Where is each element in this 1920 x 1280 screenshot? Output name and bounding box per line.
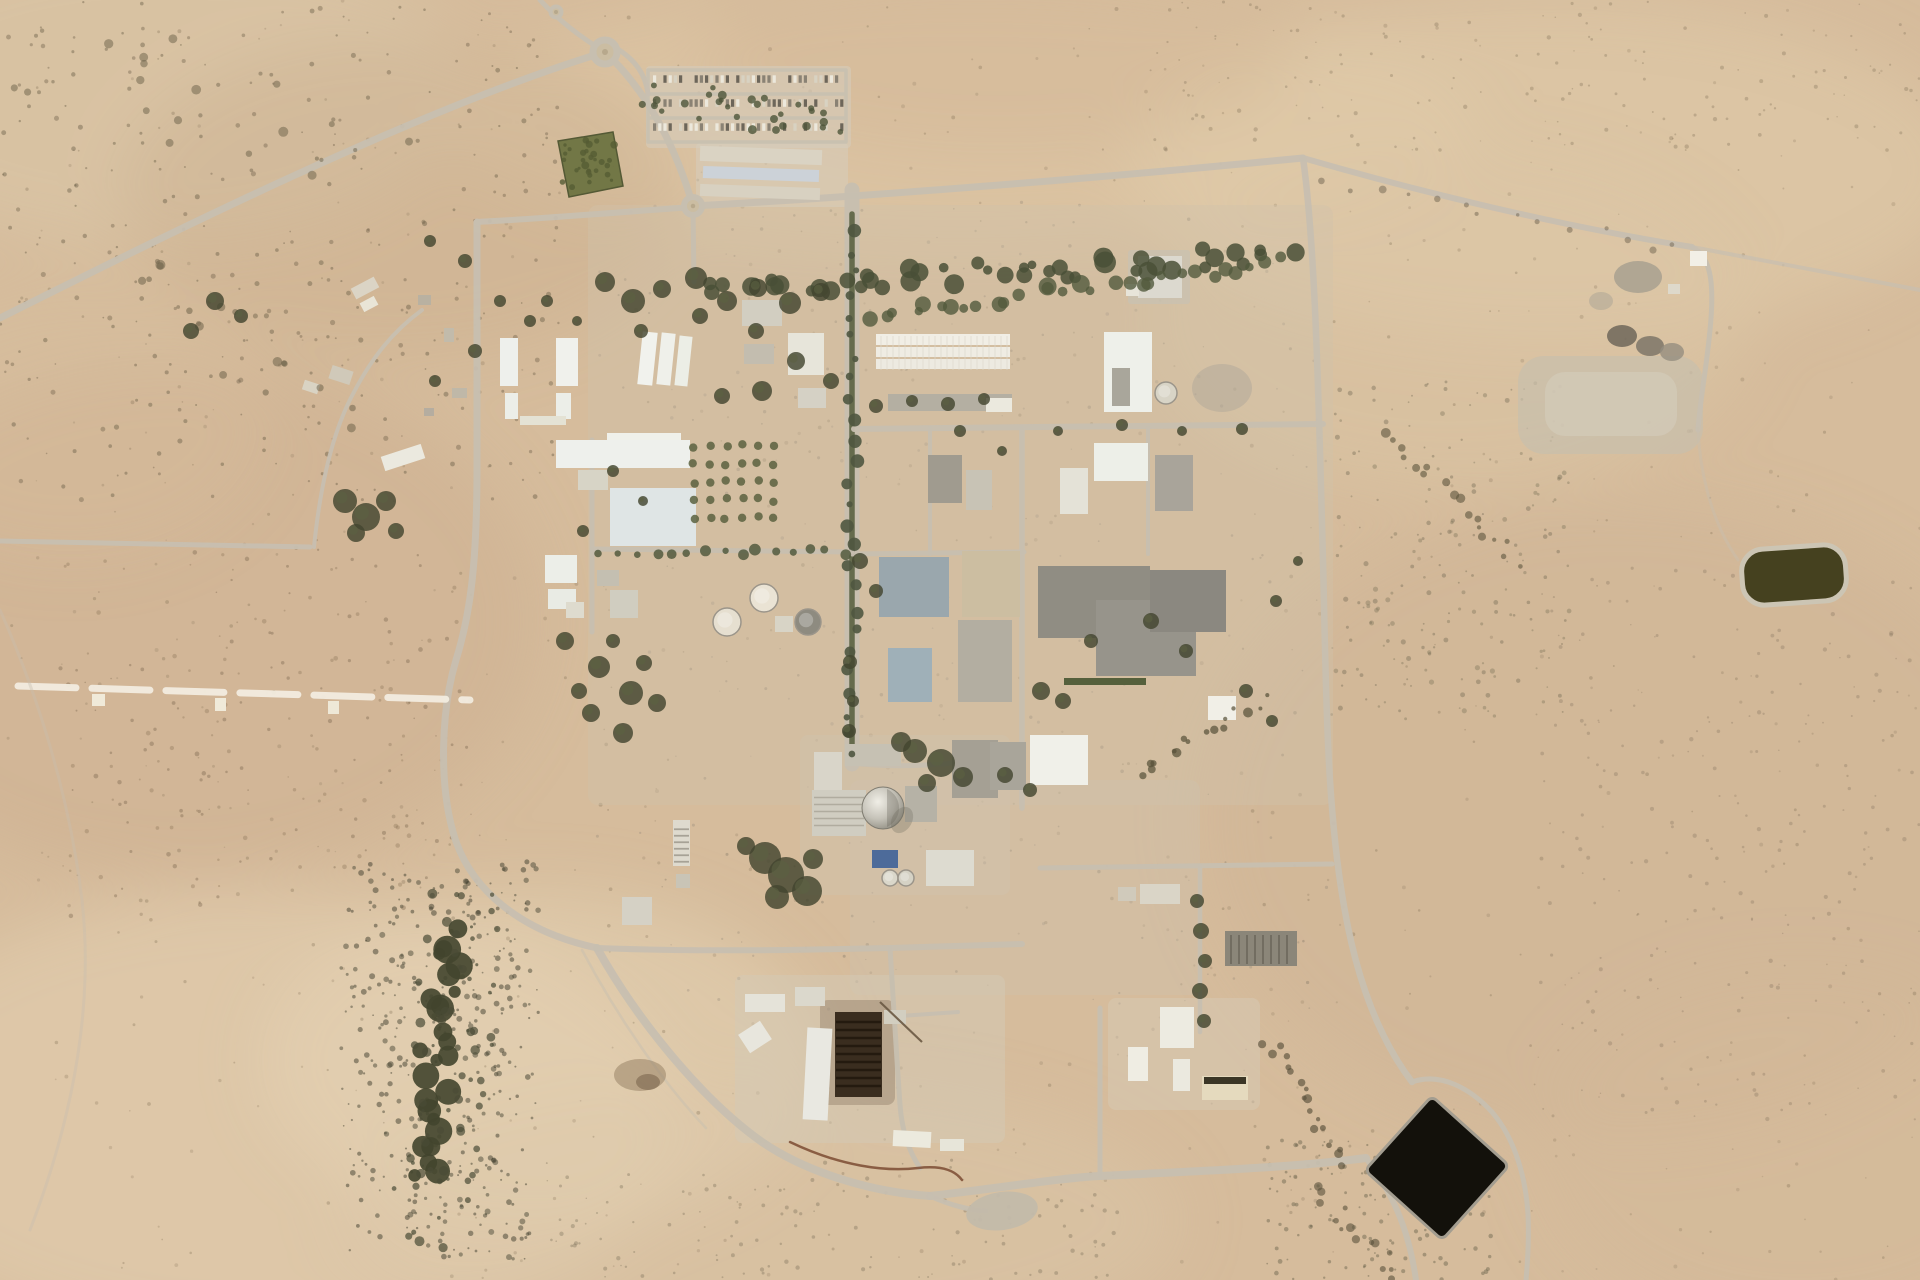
- scrub-speck: [1626, 600, 1629, 603]
- tree: [1141, 277, 1154, 290]
- building: [742, 300, 782, 326]
- scrub-speck: [1457, 248, 1460, 251]
- scrub-speck: [1572, 88, 1574, 90]
- scrub-speck: [44, 79, 48, 83]
- scrub-speck: [1534, 99, 1537, 102]
- building: [795, 987, 825, 1006]
- scrub-speck: [507, 996, 513, 1002]
- scrub-speck: [1829, 643, 1831, 645]
- scrub-speck: [28, 378, 31, 381]
- tree: [406, 1154, 414, 1162]
- scrub-speck: [1035, 57, 1038, 60]
- scrub-speck: [1562, 637, 1565, 640]
- scrub-speck: [133, 1023, 136, 1026]
- scrub-speck: [474, 1019, 477, 1022]
- scrub-speck: [72, 789, 74, 791]
- scrub-speck: [422, 221, 427, 226]
- scrub-speck: [117, 780, 121, 784]
- scrub-speck: [157, 30, 160, 33]
- scrub-speck: [302, 798, 304, 800]
- scrub-speck: [1691, 811, 1693, 813]
- scrub-speck: [1489, 310, 1491, 312]
- scrub-speck: [1544, 528, 1547, 531]
- scrub-speck: [692, 824, 695, 827]
- scrub-speck: [1593, 902, 1596, 905]
- building: [798, 388, 826, 408]
- scrub-speck: [211, 734, 213, 736]
- tree-cluster-lite: [638, 657, 646, 665]
- scrub-speck: [1697, 1083, 1699, 1085]
- scrub-speck: [1650, 954, 1653, 957]
- scrub-speck: [1201, 115, 1205, 119]
- scrub-speck: [1403, 1256, 1407, 1260]
- scrub-speck: [1598, 721, 1600, 723]
- scrub-speck: [1590, 38, 1593, 41]
- scrub-speck: [1263, 1158, 1267, 1162]
- scrub-speck: [1376, 607, 1380, 611]
- scrub-speck: [456, 1009, 459, 1012]
- scrub-speck: [780, 1212, 783, 1215]
- scrub-speck: [1515, 54, 1518, 57]
- scrub-speck: [1769, 470, 1773, 474]
- orchard-tree: [689, 443, 697, 451]
- scrub-speck: [1407, 259, 1409, 261]
- scrub-speck: [491, 1158, 496, 1163]
- scrub-speck: [1063, 1225, 1066, 1228]
- scrub-speck: [1191, 117, 1194, 120]
- scrub-speck: [1188, 1147, 1191, 1150]
- scrub-speck: [1382, 1194, 1386, 1198]
- tree-cluster-lite: [1237, 424, 1243, 430]
- scrub-speck: [1656, 947, 1658, 949]
- scrub-speck: [350, 558, 353, 561]
- scrub-speck: [41, 272, 46, 277]
- scrub-speck: [1263, 903, 1266, 906]
- scrub-speck: [55, 1079, 57, 1081]
- scrub-speck: [1764, 362, 1766, 364]
- orchard-tree: [706, 460, 714, 468]
- scrub-speck: [1741, 997, 1743, 999]
- parked-car: [778, 99, 781, 107]
- scrub-speck: [1425, 500, 1428, 503]
- scrub-speck: [298, 671, 302, 675]
- scrub-speck: [411, 910, 415, 914]
- scrub-speck: [1660, 740, 1664, 744]
- scrub-speck: [1301, 1197, 1305, 1201]
- scrub-speck: [198, 810, 201, 813]
- scrub-speck: [406, 659, 410, 663]
- tree: [1407, 192, 1411, 196]
- scrub-speck: [1650, 1108, 1654, 1112]
- scrub-speck: [483, 1213, 487, 1217]
- tree: [1442, 478, 1450, 486]
- tree-cluster-lite: [1057, 695, 1065, 703]
- scrub-speck: [1453, 403, 1456, 406]
- scrub-speck: [506, 26, 508, 28]
- scrub-speck: [524, 1258, 526, 1260]
- scrub-speck: [1665, 951, 1667, 953]
- scrub-speck: [155, 563, 158, 566]
- scrub-speck: [145, 343, 147, 345]
- scrub-speck: [920, 1249, 924, 1253]
- scrub-speck: [1679, 1228, 1682, 1231]
- scrub-speck: [1483, 393, 1487, 397]
- scrub-speck: [360, 1018, 363, 1021]
- scrub-speck: [1823, 805, 1826, 808]
- scrub-speck: [1799, 683, 1801, 685]
- scrub-speck: [221, 553, 224, 556]
- tree: [1338, 1162, 1345, 1169]
- scrub-speck: [346, 973, 349, 976]
- scrub-speck: [1826, 964, 1828, 966]
- parked-car: [736, 75, 739, 83]
- scrub-speck: [18, 350, 21, 353]
- scrub-speck: [408, 1198, 412, 1202]
- scrub-speck: [284, 310, 288, 314]
- scrub-speck: [525, 1074, 531, 1080]
- scrub-speck: [1430, 556, 1432, 558]
- scrub-speck: [1271, 1012, 1275, 1016]
- tree: [411, 1230, 416, 1235]
- scrub-speck: [145, 432, 147, 434]
- orchard-tree: [723, 494, 731, 502]
- scrub-speck: [1418, 909, 1421, 912]
- scrub-speck: [1013, 1128, 1015, 1130]
- scrub-speck: [522, 479, 524, 481]
- scrub-speck: [1805, 723, 1807, 725]
- scrub-speck: [95, 709, 97, 711]
- scrub-speck: [418, 647, 423, 652]
- scrub-speck: [1595, 990, 1598, 993]
- scrub-speck: [374, 489, 376, 491]
- scrub-speck: [71, 146, 76, 151]
- ground-pad: [1545, 372, 1677, 436]
- tree: [405, 138, 413, 146]
- tree: [1231, 706, 1235, 710]
- scrub-speck: [264, 313, 269, 318]
- building: [966, 470, 992, 510]
- scrub-speck: [585, 1223, 587, 1225]
- scrub-speck: [1753, 1088, 1757, 1092]
- scrub-speck: [1787, 1184, 1791, 1188]
- scrub-speck: [1564, 984, 1566, 986]
- scrub-speck: [1587, 732, 1590, 735]
- scrub-speck: [1458, 543, 1462, 547]
- scrub-speck: [477, 1128, 479, 1130]
- scrub-speck: [1384, 420, 1389, 425]
- scrub-speck: [570, 970, 572, 972]
- scrub-speck: [1640, 131, 1642, 133]
- parked-car: [689, 99, 692, 107]
- scrub-speck: [1341, 684, 1343, 686]
- scrub-speck: [359, 59, 362, 62]
- scrub-speck: [1706, 1056, 1709, 1059]
- scrub-speck: [1798, 740, 1800, 742]
- scrub-speck: [1417, 534, 1419, 536]
- scrub-speck: [1048, 1083, 1051, 1086]
- scrub-speck: [500, 1170, 503, 1173]
- tree: [846, 291, 855, 300]
- scrub-speck: [1342, 670, 1347, 675]
- scrub-speck: [836, 1183, 839, 1186]
- parked-car: [757, 75, 760, 83]
- scrub-speck: [1531, 1210, 1533, 1212]
- scrub-speck: [1476, 679, 1481, 684]
- scrub-speck: [314, 338, 317, 341]
- scrub-speck: [412, 976, 416, 980]
- building: [926, 850, 974, 886]
- scrub-speck: [642, 856, 645, 859]
- scrub-speck: [1763, 109, 1765, 111]
- scrub-speck: [1736, 628, 1738, 630]
- scrub-speck: [1421, 55, 1424, 58]
- tree: [470, 925, 473, 928]
- scrub-speck: [219, 635, 221, 637]
- scrub-speck: [413, 1124, 418, 1129]
- scrub-speck: [499, 950, 501, 952]
- scrub-speck: [1685, 149, 1687, 151]
- tree-cluster-lite: [1054, 427, 1059, 432]
- tree: [427, 1113, 440, 1126]
- tree-cluster-lite: [955, 426, 961, 432]
- parked-car: [721, 123, 724, 131]
- scrub-speck: [559, 1232, 563, 1236]
- scrub-speck: [506, 1173, 510, 1177]
- scrub-speck: [1421, 629, 1424, 632]
- parked-car: [830, 75, 833, 83]
- scrub-speck: [177, 29, 181, 33]
- scrub-speck: [501, 390, 504, 393]
- scrub-speck: [431, 910, 437, 916]
- scrub-speck: [1844, 76, 1847, 79]
- tree: [970, 301, 981, 312]
- scrub-speck: [67, 904, 71, 908]
- scrub-speck: [1720, 916, 1723, 919]
- scrub-speck: [514, 1066, 516, 1068]
- tree: [1333, 1218, 1339, 1224]
- scrub-speck: [1195, 113, 1199, 117]
- scrub-speck: [1863, 863, 1866, 866]
- scrub-speck: [405, 1147, 407, 1149]
- scrub-speck: [732, 1093, 734, 1095]
- scrub-speck: [443, 1219, 448, 1224]
- scrub-speck: [121, 32, 124, 35]
- scrub-speck: [373, 949, 379, 955]
- scrub-speck: [1550, 168, 1552, 170]
- scrub-speck: [1609, 2, 1612, 5]
- scrub-speck: [1865, 1177, 1867, 1179]
- scrub-speck: [1653, 585, 1655, 587]
- scrub-speck: [1297, 1234, 1300, 1237]
- tree: [998, 297, 1009, 308]
- scrub-speck: [78, 150, 80, 152]
- parked-car: [788, 99, 791, 107]
- scrub-speck: [861, 1267, 865, 1271]
- scrub-speck: [1438, 711, 1441, 714]
- scrub-speck: [1536, 667, 1538, 669]
- tree-cluster-lite: [597, 274, 607, 284]
- parked-car: [747, 75, 750, 83]
- scrub-speck: [200, 778, 203, 781]
- tree-cluster-lite: [719, 293, 729, 303]
- scrub-speck: [370, 241, 372, 243]
- scrub-speck: [1282, 1179, 1286, 1183]
- scrub-speck: [211, 495, 214, 498]
- field-mottle: [586, 140, 590, 144]
- tree: [840, 273, 856, 289]
- scrub-speck: [327, 1201, 331, 1205]
- scrub-speck: [1757, 652, 1760, 655]
- tree: [852, 624, 861, 633]
- scrub-speck: [36, 86, 39, 89]
- parked-car: [700, 99, 703, 107]
- scrub-speck: [467, 108, 472, 113]
- scrub-speck: [1443, 638, 1448, 643]
- scrub-speck: [1224, 861, 1226, 863]
- scrub-speck: [1882, 739, 1885, 742]
- tree-cluster-lite: [390, 525, 398, 533]
- tree: [840, 519, 853, 532]
- field-mottle: [563, 143, 566, 146]
- scrub-speck: [1705, 882, 1709, 886]
- tree: [480, 1091, 486, 1097]
- tree: [1518, 564, 1523, 569]
- tree: [1109, 275, 1123, 289]
- scrub-speck: [441, 332, 443, 334]
- scrub-speck: [171, 112, 174, 115]
- tree: [425, 1133, 429, 1137]
- scrub-speck: [460, 1204, 463, 1207]
- tree: [263, 389, 269, 395]
- scrub-speck: [1488, 1234, 1492, 1238]
- parked-car: [762, 75, 765, 83]
- scrub-speck: [1755, 675, 1758, 678]
- scrub-speck: [488, 1250, 490, 1252]
- scrub-speck: [555, 106, 559, 110]
- scrub-speck: [250, 168, 254, 172]
- tank-highlight: [1158, 385, 1170, 397]
- scrub-speck: [426, 965, 428, 967]
- scrub-speck: [455, 620, 459, 624]
- scrub-speck: [221, 463, 224, 466]
- scrub-speck: [485, 78, 488, 81]
- scrub-speck: [169, 363, 172, 366]
- scrub-speck: [1783, 863, 1785, 865]
- scrub-speck: [488, 464, 491, 467]
- scrub-speck: [1671, 825, 1674, 828]
- scrub-speck: [51, 80, 54, 83]
- scrub-speck: [509, 940, 512, 943]
- scrub-speck: [1308, 1007, 1310, 1009]
- scrub-speck: [739, 1207, 741, 1209]
- scrub-speck: [481, 361, 485, 365]
- scrub-speck: [1358, 450, 1360, 452]
- tree: [1188, 264, 1202, 278]
- scrub-speck: [1540, 752, 1544, 756]
- tree: [473, 1146, 480, 1153]
- tree-cluster-lite: [1117, 420, 1123, 426]
- tree-cluster-lite: [1195, 925, 1203, 933]
- parked-car: [705, 99, 708, 107]
- scrub-speck: [515, 1113, 517, 1115]
- scrub-speck: [1754, 1092, 1758, 1096]
- tree: [451, 949, 459, 957]
- tree-cluster-lite: [750, 325, 758, 333]
- building: [215, 698, 226, 711]
- scrub-speck: [1726, 117, 1729, 120]
- scrub-speck: [1391, 1241, 1394, 1244]
- parked-car: [835, 75, 838, 83]
- scrub-speck: [404, 874, 407, 877]
- scrub-speck: [18, 83, 21, 86]
- tree-cluster-lite: [920, 776, 929, 785]
- scrub-speck: [469, 1021, 471, 1023]
- scrub-speck: [1874, 795, 1876, 797]
- scrub-speck: [406, 213, 409, 216]
- scrub-speck: [898, 1256, 900, 1258]
- scrub-speck: [275, 248, 279, 252]
- scrub-speck: [1351, 495, 1353, 497]
- scrub-speck: [627, 16, 631, 20]
- scrub-speck: [162, 794, 165, 797]
- building: [545, 555, 577, 583]
- scrub-speck: [491, 128, 493, 130]
- scrub-speck: [281, 661, 285, 665]
- tree: [1258, 707, 1262, 711]
- scrub-speck: [1467, 21, 1471, 25]
- scrub-speck: [111, 169, 113, 171]
- scrub-speck: [229, 807, 231, 809]
- scrub-speck: [332, 979, 335, 982]
- tree-cluster-lite: [814, 285, 823, 294]
- scrub-speck: [515, 965, 520, 970]
- scrub-speck: [1480, 140, 1481, 141]
- scrub-speck: [473, 154, 475, 156]
- tree: [681, 100, 689, 108]
- scrub-speck: [425, 839, 427, 841]
- tree: [466, 1029, 470, 1033]
- scrub-speck: [1854, 124, 1858, 128]
- scrub-speck: [1522, 560, 1524, 562]
- tree-cluster-lite: [907, 396, 913, 402]
- building: [803, 1027, 833, 1120]
- scrub-speck: [1209, 127, 1213, 131]
- scrub-speck: [407, 899, 409, 901]
- scrub-speck: [355, 1090, 357, 1092]
- scrub-speck: [866, 1195, 869, 1198]
- scrub-speck: [41, 852, 43, 854]
- scrub-speck: [553, 160, 557, 164]
- scrub-speck: [518, 985, 521, 988]
- scrub-speck: [353, 759, 355, 761]
- scrub-speck: [1515, 271, 1518, 274]
- scrub-speck: [451, 590, 454, 593]
- tree: [1505, 539, 1510, 544]
- green-field-group: [558, 132, 623, 197]
- scrub-speck: [187, 36, 190, 39]
- scrub-speck: [348, 1103, 350, 1105]
- scrub-speck: [236, 892, 240, 896]
- scrub-speck: [247, 789, 249, 791]
- scrub-speck: [1887, 1246, 1889, 1248]
- scrub-speck: [55, 1041, 59, 1045]
- scrub-speck: [351, 53, 356, 58]
- scrub-speck: [336, 483, 338, 485]
- scrub-speck: [1552, 1114, 1555, 1117]
- scrub-speck: [1401, 662, 1403, 664]
- scrub-speck: [178, 408, 182, 412]
- scrub-speck: [673, 1272, 676, 1275]
